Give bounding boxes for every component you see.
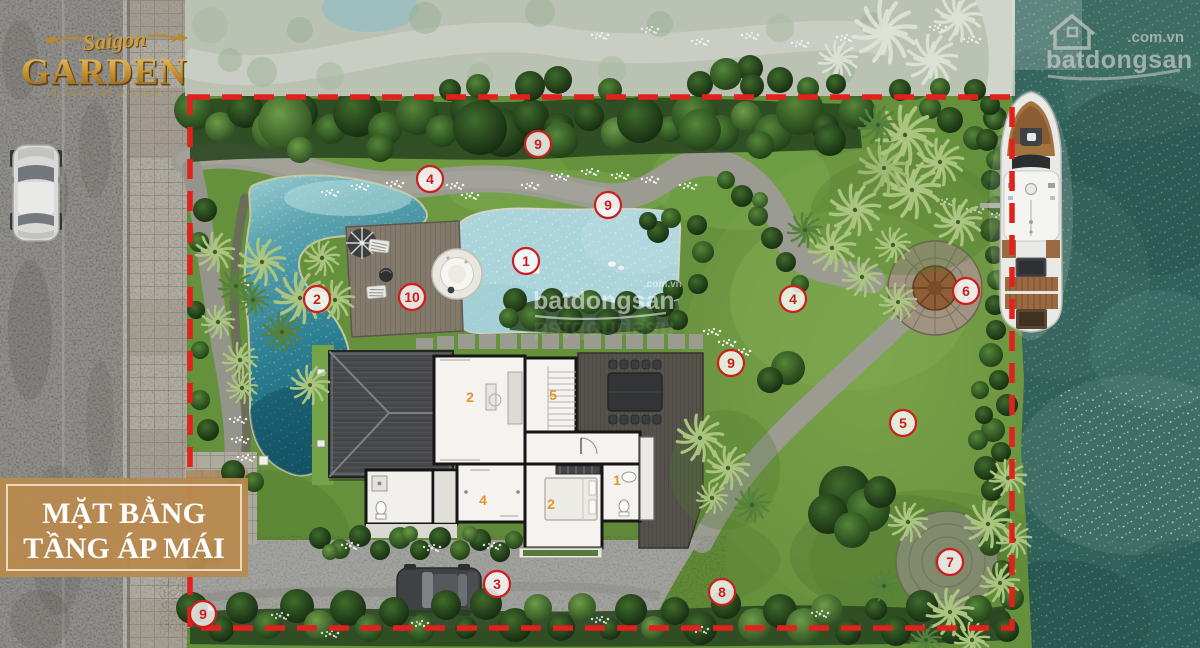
svg-text:5: 5 [899,415,907,431]
svg-text:9: 9 [727,355,735,371]
svg-text:2: 2 [547,496,555,512]
svg-text:3: 3 [493,576,501,592]
svg-text:9: 9 [604,197,612,213]
svg-text:5: 5 [549,387,557,403]
svg-text:4: 4 [426,171,434,187]
svg-text:Saigon: Saigon [82,26,147,55]
svg-text:4: 4 [789,291,797,307]
svg-text:MẶT BẰNG: MẶT BẰNG [42,496,206,530]
svg-text:6: 6 [962,283,970,299]
svg-text:7: 7 [946,554,954,570]
svg-text:RIVERSIDE VILLAS: RIVERSIDE VILLAS [51,88,161,97]
svg-text:TẦNG ÁP MÁI: TẦNG ÁP MÁI [23,531,225,565]
svg-text:batdongsan: batdongsan [533,316,675,344]
svg-text:.com.vn: .com.vn [1127,29,1184,46]
svg-text:4: 4 [479,492,487,508]
svg-text:2: 2 [313,291,321,307]
svg-text:10: 10 [404,289,420,305]
svg-text:8: 8 [718,584,726,600]
svg-text:.com.vn: .com.vn [644,279,682,290]
svg-text:GARDEN: GARDEN [21,52,187,93]
svg-text:1: 1 [613,472,621,488]
svg-text:1: 1 [522,253,530,269]
svg-text:batdongsan: batdongsan [1046,46,1193,74]
svg-text:batdongsan: batdongsan [533,287,675,315]
svg-text:9: 9 [199,606,207,622]
svg-text:9: 9 [534,136,542,152]
svg-text:2: 2 [466,389,474,405]
